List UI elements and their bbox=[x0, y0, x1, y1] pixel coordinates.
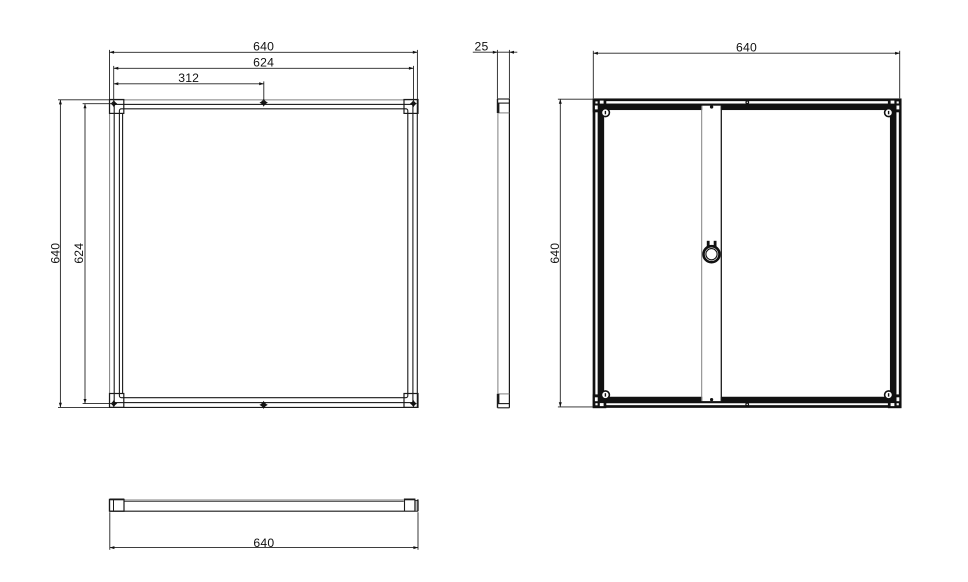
svg-text:640: 640 bbox=[736, 40, 757, 54]
svg-text:25: 25 bbox=[475, 40, 489, 54]
svg-text:312: 312 bbox=[178, 71, 199, 85]
svg-text:640: 640 bbox=[253, 536, 274, 550]
svg-text:624: 624 bbox=[72, 243, 86, 264]
svg-text:640: 640 bbox=[48, 243, 62, 264]
svg-text:640: 640 bbox=[548, 243, 562, 264]
svg-text:624: 624 bbox=[253, 56, 274, 70]
svg-text:640: 640 bbox=[253, 40, 274, 54]
